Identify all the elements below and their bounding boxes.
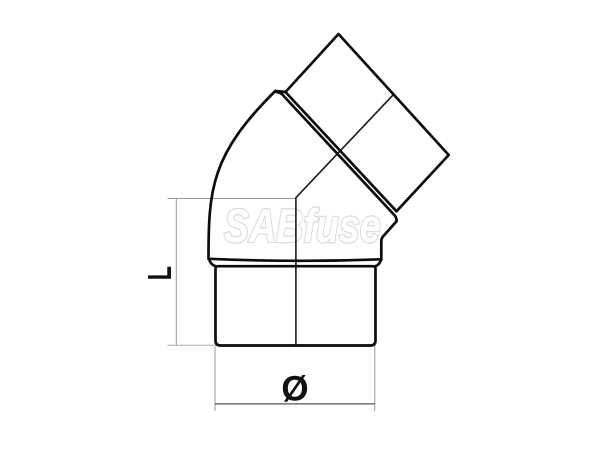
svg-text:L: L <box>142 266 179 280</box>
svg-text:Ø: Ø <box>281 369 308 408</box>
svg-text:SABfuse: SABfuse <box>224 200 381 253</box>
